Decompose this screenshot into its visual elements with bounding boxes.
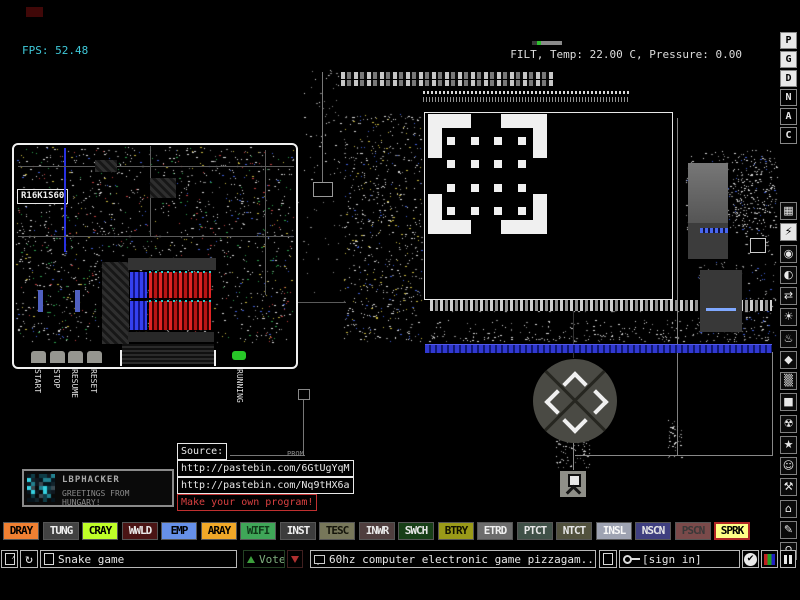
display-pixel — [494, 137, 502, 145]
prom-chip-label: PROM — [287, 450, 304, 458]
clear-sim-button[interactable] — [599, 550, 617, 568]
element-tung[interactable]: TUNG — [43, 522, 79, 540]
sign-in-button[interactable]: [sign in] — [619, 550, 740, 568]
vote-up-icon — [247, 556, 255, 563]
reload-icon: ↻ — [25, 552, 33, 567]
display-pixel — [447, 160, 455, 168]
display-pixel — [494, 184, 502, 192]
display-pixel — [494, 207, 502, 215]
display-pixel — [471, 207, 479, 215]
explosives-menu-icon[interactable]: ☀ — [780, 308, 797, 326]
board-button-start[interactable] — [31, 351, 46, 363]
open-icon: ↗ — [5, 553, 15, 565]
tag-icon — [314, 555, 325, 564]
special-menu-icon[interactable]: ★ — [780, 436, 797, 454]
author-signature: LBPHACKER GREETINGS FROM HUNGARY! — [22, 469, 174, 507]
display-pixel — [447, 184, 455, 192]
source-title-sign: Source: — [177, 443, 227, 460]
view-toggle-p[interactable]: P — [780, 32, 797, 49]
save-button[interactable]: Snake game — [40, 550, 237, 568]
view-toggle-d[interactable]: D — [780, 70, 797, 87]
display-pixel — [518, 160, 526, 168]
controller-box[interactable] — [560, 471, 586, 497]
display-pixel — [447, 207, 455, 215]
view-toggle-c[interactable]: C — [780, 127, 797, 144]
source-link-2[interactable]: http://pastebin.com/Nq9tHX6a — [177, 477, 354, 494]
decoration-menu-icon[interactable]: ✎ — [780, 521, 797, 539]
board-button-resume[interactable] — [68, 351, 83, 363]
board-connector-block — [122, 344, 214, 364]
ram-bank-red — [149, 301, 211, 330]
element-ptct[interactable]: PTCT — [517, 522, 553, 540]
vote-down-button[interactable] — [287, 550, 303, 568]
board-button-label-start: START — [33, 369, 42, 393]
dpad-control[interactable] — [533, 359, 617, 443]
display-pixel — [471, 184, 479, 192]
view-toggle-a[interactable]: A — [780, 108, 797, 125]
element-swch[interactable]: SWCH — [398, 522, 434, 540]
element-pscn[interactable]: PSCN — [675, 522, 711, 540]
save-name: Snake game — [58, 552, 124, 567]
tools-menu-icon[interactable]: ⚒ — [780, 478, 797, 496]
display-pixel — [447, 137, 455, 145]
element-nscn[interactable]: NSCN — [635, 522, 671, 540]
tags-text: 60hz computer electronic game pizzagam..… — [329, 552, 596, 567]
faint-artifact — [26, 7, 43, 17]
radioactive-menu-icon[interactable]: ☢ — [780, 415, 797, 433]
board-model-label: R16K1S60 — [17, 189, 68, 204]
save-icon — [44, 553, 54, 565]
element-inwr[interactable]: INWR — [359, 522, 395, 540]
cta-sign[interactable]: Make your own program! — [177, 494, 317, 511]
force-menu-icon[interactable]: ⇄ — [780, 287, 797, 305]
board-button-label-stop: STOP — [52, 369, 61, 388]
board-button-label-reset: RESET — [89, 369, 98, 393]
electronics-menu-icon[interactable]: ⚡ — [780, 223, 797, 241]
element-wifi[interactable]: WIFI — [240, 522, 276, 540]
favorites-menu-icon[interactable]: ⌂ — [780, 500, 797, 518]
hud-element-info: FILT, Temp: 22.00 C, Pressure: 0.00 — [510, 48, 742, 61]
author-name: LBPHACKER — [62, 475, 120, 485]
sim-options-button[interactable]: ✔ — [742, 550, 759, 568]
element-wwld[interactable]: WWLD — [122, 522, 158, 540]
element-tesc[interactable]: TESC — [319, 522, 355, 540]
controller-box-caret-icon — [566, 485, 582, 501]
simulation-canvas[interactable]: FPS: 52.48 FILT, Temp: 22.00 C, Pressure… — [0, 0, 779, 546]
hud-gradient-bar — [532, 41, 562, 45]
display-pixel — [518, 207, 526, 215]
element-sprk[interactable]: SPRK — [714, 522, 750, 540]
powders-menu-icon[interactable]: ▒ — [780, 372, 797, 390]
app-root: FPS: 52.48 FILT, Temp: 22.00 C, Pressure… — [0, 0, 800, 600]
pause-icon — [784, 555, 787, 564]
element-etrd[interactable]: ETRD — [477, 522, 513, 540]
checkmark-icon: ✔ — [744, 553, 757, 566]
blue-register-bar — [425, 344, 772, 353]
vote-up-button[interactable]: Vote — [243, 550, 285, 568]
ic-chip — [102, 262, 129, 344]
ram-bank-blue — [130, 272, 147, 298]
source-link-1[interactable]: http://pastebin.com/6GtUgYqM — [177, 460, 354, 477]
open-browser-button[interactable]: ↗ — [1, 550, 18, 568]
gases-menu-icon[interactable]: ♨ — [780, 330, 797, 348]
pause-button[interactable] — [780, 550, 796, 568]
fps-counter: FPS: 52.48 — [22, 44, 88, 57]
powered-menu-icon[interactable]: ◉ — [780, 245, 797, 263]
author-avatar — [27, 474, 55, 502]
element-aray[interactable]: ARAY — [201, 522, 237, 540]
board-button-reset[interactable] — [87, 351, 102, 363]
liquids-menu-icon[interactable]: ◆ — [780, 351, 797, 369]
sensors-menu-icon[interactable]: ◐ — [780, 266, 797, 284]
element-btry[interactable]: BTRY — [438, 522, 474, 540]
render-options-button[interactable] — [761, 550, 778, 568]
ic-chip — [95, 160, 117, 172]
solids-menu-icon[interactable]: ■ — [780, 393, 797, 411]
vote-down-icon — [291, 556, 299, 563]
display-arena-ring — [428, 114, 547, 234]
gray-module — [688, 163, 728, 223]
tags-button[interactable]: 60hz computer electronic game pizzagam..… — [310, 550, 596, 568]
view-toggle-g[interactable]: G — [780, 51, 797, 68]
running-led — [232, 351, 246, 360]
element-dray[interactable]: DRAY — [3, 522, 39, 540]
life-menu-icon[interactable]: ☺ — [780, 457, 797, 475]
element-emp[interactable]: EMP — [161, 522, 197, 540]
ram-bank-red — [149, 272, 211, 298]
key-icon — [623, 555, 632, 564]
author-greeting: GREETINGS FROM HUNGARY! — [62, 489, 172, 507]
board-button-label-resume: RESUME — [70, 369, 79, 398]
display-pixel — [471, 137, 479, 145]
element-insl[interactable]: INSL — [596, 522, 632, 540]
rainbow-icon — [764, 554, 775, 565]
ic-chip — [150, 178, 176, 198]
element-cray[interactable]: CRAY — [82, 522, 118, 540]
ram-bank-blue — [130, 301, 147, 330]
new-document-icon — [603, 553, 613, 565]
element-ntct[interactable]: NTCT — [556, 522, 592, 540]
board-button-stop[interactable] — [50, 351, 65, 363]
display-pixel — [471, 160, 479, 168]
gray-module — [700, 270, 742, 332]
element-inst[interactable]: INST — [280, 522, 316, 540]
view-toggle-n[interactable]: N — [780, 89, 797, 106]
keyboard-menu-icon[interactable]: ▦ — [780, 202, 797, 220]
display-pixel — [518, 137, 526, 145]
display-pixel — [494, 160, 502, 168]
display-pixel — [518, 184, 526, 192]
reload-button[interactable]: ↻ — [20, 550, 38, 568]
board-status-label: RUNNING — [235, 369, 244, 403]
